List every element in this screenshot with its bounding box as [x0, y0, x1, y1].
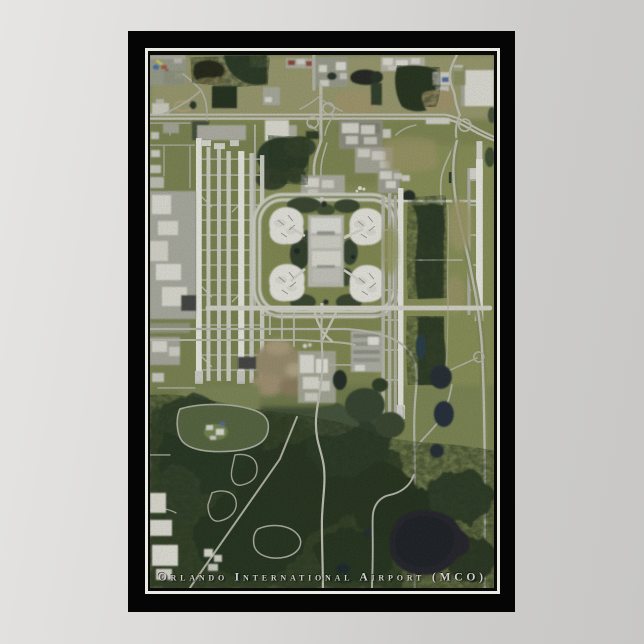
- svg-text:Orlando International Airport: Orlando International Airport (MCO): [157, 570, 486, 583]
